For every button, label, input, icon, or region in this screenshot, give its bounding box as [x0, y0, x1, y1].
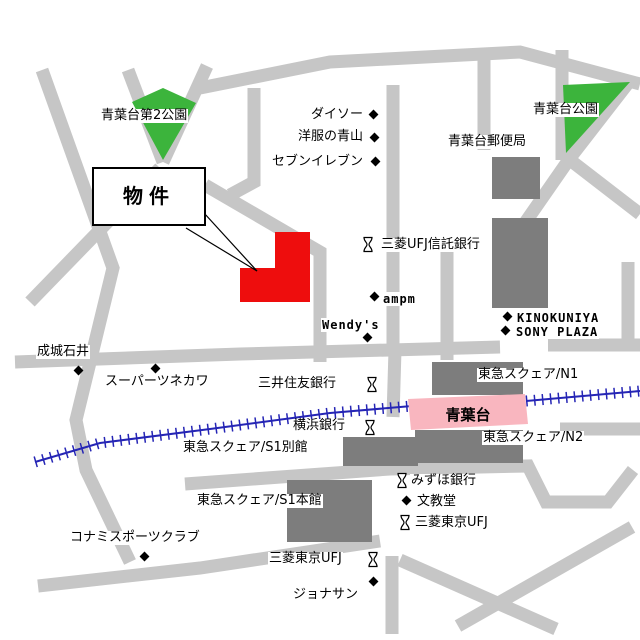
park-aobadai — [563, 82, 630, 153]
building-tokyu-square-s1-annex — [343, 437, 418, 466]
label-tokyu-square-s1-annex: 東急スクェア/S1別館 — [182, 441, 309, 455]
label-super-tsunekawa: スーパーツネカワ — [104, 375, 210, 389]
label-yofuku-no-aoyama: 洋服の青山 — [297, 130, 364, 144]
label-ampm: ampm — [382, 292, 417, 306]
label-seven-eleven: セブンイレブン — [271, 155, 364, 169]
property-callout: 物件 — [92, 167, 206, 226]
label-mitsui-sumitomo-bank: 三井住友銀行 — [257, 377, 337, 391]
label-aobadai-post-office: 青葉台郵便局 — [447, 135, 527, 149]
station-name: 青葉台 — [420, 404, 516, 425]
label-bunkyodo: 文教堂 — [416, 495, 457, 509]
parks — [132, 82, 630, 160]
bank-icon — [399, 514, 411, 531]
bank-icon — [366, 376, 378, 393]
building-tokyu-square-n1 — [492, 218, 548, 308]
label-mitsubishi-ufj-trust-bank: 三菱UFJ信託銀行 — [380, 238, 481, 252]
label-daiso: ダイソー — [310, 108, 364, 122]
label-seijo-ishii: 成城石井 — [36, 345, 90, 359]
label-aobadai-dai2-park: 青葉台第2公園 — [100, 109, 188, 123]
label-yokohama-bank: 横浜銀行 — [292, 419, 346, 433]
label-tokyu-square-n1: 東急スクェア/N1 — [477, 368, 579, 382]
label-mitsubishi-tokyo-ufj: 三菱東京UFJ — [414, 516, 489, 530]
building-post-office — [492, 157, 540, 199]
label-aobadai-park: 青葉台公園 — [532, 103, 599, 117]
bank-icon — [362, 236, 374, 253]
label-konami-sports-club: コナミスポーツクラブ — [69, 531, 201, 545]
bank-icon — [367, 551, 379, 568]
area-map: 物件 青葉台 青葉台第2公園 ダイソー 洋服の青山 セブンイレブン 青葉台公園 … — [0, 0, 640, 640]
label-mizuho-bank: みずほ銀行 — [410, 474, 477, 488]
label-kinokuniya: KINOKUNIYA — [516, 311, 600, 325]
bank-icon — [396, 472, 408, 489]
label-mitsubishi-tokyo-ufj-2: 三菱東京UFJ — [268, 552, 343, 566]
bank-icon — [364, 419, 376, 436]
label-sony-plaza: SONY PLAZA — [515, 325, 599, 339]
label-jonathan: ジョナサン — [292, 588, 359, 602]
label-tokyu-square-n2: 東急スクェア/N2 — [482, 431, 584, 445]
building-tokyu-square-s1-main — [287, 480, 372, 542]
label-wendys: Wendy's — [321, 318, 381, 332]
label-tokyu-square-s1-main: 東急スクェア/S1本館 — [196, 494, 323, 508]
